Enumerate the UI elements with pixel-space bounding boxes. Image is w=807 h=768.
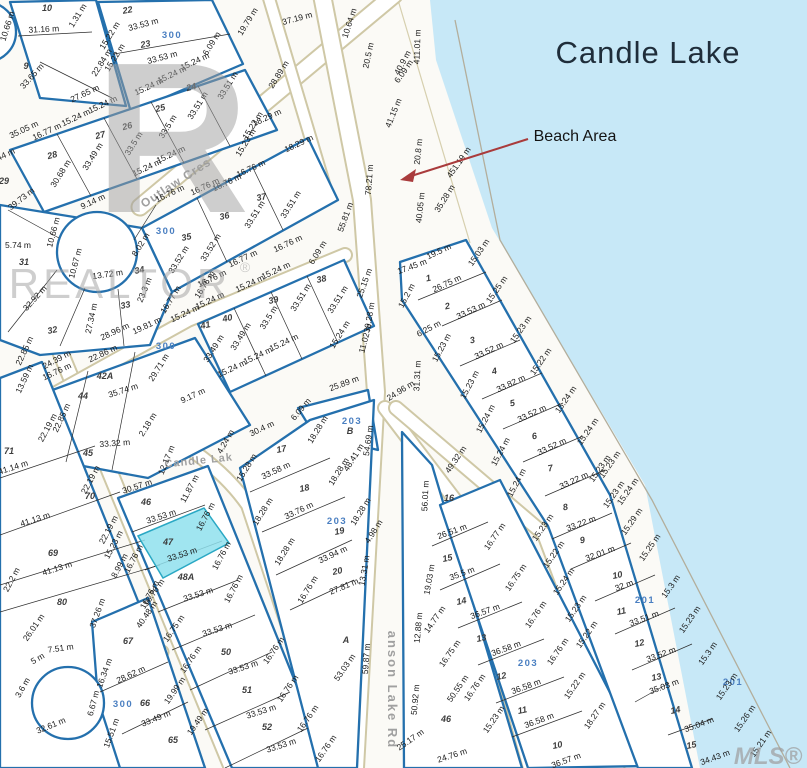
lot-number: 10: [42, 3, 52, 13]
realtor-registered-icon: ®: [240, 259, 251, 275]
lot-number: 50: [221, 647, 231, 657]
realtor-r-logo-icon: R: [94, 17, 249, 258]
lot-number: B: [347, 426, 354, 436]
zone-label: 203: [327, 516, 347, 527]
lot-number: 46: [140, 497, 152, 507]
measurement-label: 40.05 m: [413, 192, 426, 224]
measurement-label: 20.8 m: [412, 138, 425, 165]
lot-number: 80: [57, 597, 67, 607]
measurement-label: 37.19 m: [281, 9, 313, 27]
lot-number: 52: [262, 722, 272, 732]
measurement-label: 41.15 m: [383, 97, 404, 129]
lot-number: 13: [475, 632, 487, 644]
lot-number: 48A: [177, 572, 195, 582]
measurement-label: 15.24 m: [575, 416, 601, 447]
beach-area-label: Beach Area: [534, 128, 617, 145]
lot-number: 16: [444, 493, 455, 503]
lot-number: 10: [551, 739, 563, 751]
measurement-label: 411.01 m: [411, 29, 422, 64]
lot-number: 14: [455, 595, 467, 607]
lot-number: 66: [140, 698, 151, 708]
measurement-label: 31.16 m: [28, 23, 59, 35]
beach-area-arrowhead-icon: [400, 169, 416, 182]
lot-number: 9: [23, 61, 28, 71]
lot-number: A: [342, 635, 350, 645]
lot-number: 67: [123, 636, 134, 646]
lot-number: 51: [242, 685, 252, 695]
lot-number: 22: [121, 4, 134, 16]
lot-number: 29: [0, 176, 9, 186]
realtor-watermark-text: REALTOR: [9, 260, 232, 307]
measurement-label: 56.01 m: [419, 480, 431, 511]
measurement-label: 16.76 m: [272, 232, 304, 254]
measurement-label: 5.74 m: [5, 240, 31, 250]
mls-watermark: MLS®: [734, 743, 803, 768]
lot-number: 18: [298, 482, 310, 494]
lot-number: 12: [495, 670, 507, 682]
zone-label: 300: [156, 341, 176, 352]
measurement-label: 25.89 m: [328, 373, 360, 393]
lake-title: Candle Lake: [555, 35, 740, 70]
lot-number: 12: [633, 637, 645, 649]
measurement-label: 30.4 m: [248, 418, 276, 438]
plat-map-container[interactable]: Outlaw Cres Candle Lak anson Lake Rd 103…: [0, 0, 807, 768]
measurement-label: 451.19 m: [444, 145, 473, 180]
measurement-label: 20.5 m: [360, 42, 375, 70]
lot-number: 39: [267, 294, 279, 306]
measurement-label: 78.21 m: [363, 164, 375, 195]
lot-number: 71: [4, 446, 14, 456]
measurement-label: 35.28 m: [432, 183, 457, 214]
lot-number: 65: [168, 735, 179, 745]
zone-label: 201: [635, 595, 655, 606]
street-label-anson-lake-rd: anson Lake Rd: [385, 631, 400, 749]
lot-number: 46: [440, 714, 452, 724]
lot-number: 14: [669, 704, 681, 716]
lot-number: 42A: [96, 371, 114, 381]
lot-number: 45: [82, 448, 94, 458]
measurement-label: 15.29 m: [619, 506, 645, 537]
lot-number: 10: [611, 569, 623, 581]
measurement-label: 59.87 m: [360, 643, 372, 674]
candle-lake-plat-map[interactable]: Outlaw Cres Candle Lak anson Lake Rd 103…: [0, 0, 807, 768]
zone-label: 203: [518, 658, 538, 669]
lot-number: 38: [315, 273, 327, 285]
zone-label: 300: [113, 699, 133, 710]
lot-number: 44: [77, 391, 88, 401]
lot-number: 69: [48, 548, 58, 558]
lot-number: 47: [162, 537, 174, 547]
measurement-label: 33.32 m: [99, 437, 130, 449]
measurement-label: 55.81 m: [335, 201, 355, 233]
lot-number: 32: [46, 324, 58, 336]
